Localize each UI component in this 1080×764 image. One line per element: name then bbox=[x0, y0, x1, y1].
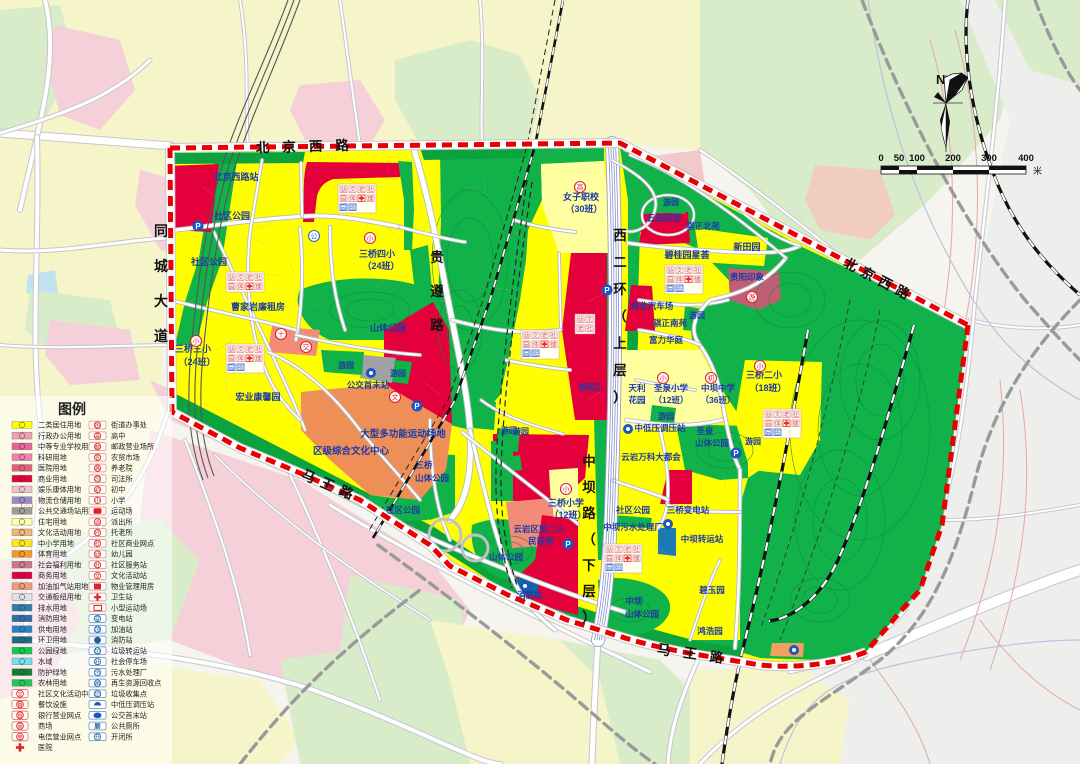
svg-text:社: 社 bbox=[695, 266, 701, 274]
svg-text:中低压调压站: 中低压调压站 bbox=[634, 423, 686, 433]
svg-text:三桥小学: 三桥小学 bbox=[548, 497, 584, 508]
svg-text:文: 文 bbox=[238, 345, 244, 353]
svg-text:文: 文 bbox=[775, 410, 781, 418]
svg-text:幼儿园: 幼儿园 bbox=[111, 550, 133, 559]
svg-text:养老院: 养老院 bbox=[111, 464, 133, 473]
svg-text:园: 园 bbox=[668, 276, 674, 283]
svg-text:社: 社 bbox=[256, 273, 262, 281]
svg-text:医院用地: 医院用地 bbox=[38, 464, 67, 473]
svg-text:商: 商 bbox=[17, 722, 23, 730]
svg-text:米: 米 bbox=[1033, 165, 1042, 176]
svg-text:商务用地: 商务用地 bbox=[38, 571, 67, 580]
svg-text:小: 小 bbox=[660, 374, 667, 383]
svg-text:中等专业学校用地: 中等专业学校用地 bbox=[38, 442, 96, 451]
svg-text:卫生站: 卫生站 bbox=[111, 593, 133, 602]
svg-text:民医院: 民医院 bbox=[528, 536, 554, 546]
svg-text:园: 园 bbox=[766, 420, 772, 427]
svg-text:班: 班 bbox=[533, 349, 539, 357]
svg-text:骐正北苑: 骐正北苑 bbox=[686, 221, 721, 231]
svg-text:老: 老 bbox=[247, 345, 253, 353]
svg-text:垃圾转运站: 垃圾转运站 bbox=[111, 646, 147, 655]
svg-text:中: 中 bbox=[582, 453, 596, 469]
svg-text:再生资源回收点: 再生资源回收点 bbox=[111, 679, 161, 688]
svg-text:大: 大 bbox=[154, 293, 168, 309]
svg-text:医院: 医院 bbox=[38, 743, 52, 752]
svg-text:山体公园: 山体公园 bbox=[415, 473, 449, 483]
svg-text:（24班）: （24班） bbox=[178, 356, 215, 367]
svg-text:山体公园: 山体公园 bbox=[695, 438, 729, 448]
svg-text:文: 文 bbox=[533, 331, 539, 339]
svg-text:云岩区第二人: 云岩区第二人 bbox=[513, 524, 565, 534]
svg-text:小型运动场: 小型运动场 bbox=[111, 603, 147, 612]
svg-text:商业汽车场: 商业汽车场 bbox=[631, 301, 674, 311]
svg-text:垃: 垃 bbox=[95, 690, 101, 698]
svg-text:云田府邸: 云田府邸 bbox=[647, 213, 682, 223]
svg-text:键: 键 bbox=[256, 354, 262, 362]
svg-text:再: 再 bbox=[95, 680, 101, 687]
svg-text:幼: 幼 bbox=[578, 315, 584, 323]
svg-text:富力华庭: 富力华庭 bbox=[649, 335, 684, 345]
svg-text:图例: 图例 bbox=[58, 401, 86, 417]
svg-text:文: 文 bbox=[392, 393, 399, 402]
svg-text:幼: 幼 bbox=[341, 185, 347, 193]
svg-text:交: 交 bbox=[303, 343, 310, 352]
svg-text:游园: 游园 bbox=[513, 426, 529, 436]
svg-text:遵: 遵 bbox=[430, 283, 444, 299]
svg-text:层: 层 bbox=[582, 584, 596, 599]
svg-text:（36班）: （36班） bbox=[701, 395, 736, 405]
svg-text:餐饮设施: 餐饮设施 bbox=[38, 700, 67, 709]
svg-text:养: 养 bbox=[95, 464, 101, 472]
svg-text:键: 键 bbox=[368, 194, 374, 202]
svg-text:二: 二 bbox=[613, 255, 627, 270]
svg-text:司: 司 bbox=[95, 476, 101, 483]
svg-text:社区公园: 社区公园 bbox=[615, 505, 650, 515]
svg-text:社: 社 bbox=[551, 331, 557, 339]
svg-text:社区公园: 社区公园 bbox=[190, 256, 227, 267]
svg-text:宏业康馨园: 宏业康馨园 bbox=[235, 391, 280, 402]
svg-text:园: 园 bbox=[607, 564, 613, 571]
svg-text:园: 园 bbox=[766, 429, 772, 436]
svg-text:十: 十 bbox=[278, 330, 285, 339]
svg-text:0: 0 bbox=[878, 153, 883, 164]
svg-text:P: P bbox=[733, 449, 739, 458]
svg-text:老: 老 bbox=[247, 273, 253, 281]
svg-text:高: 高 bbox=[577, 183, 584, 192]
svg-text:加: 加 bbox=[95, 626, 101, 634]
svg-text:）: ） bbox=[582, 610, 596, 625]
svg-text:娱乐康体用地: 娱乐康体用地 bbox=[38, 485, 81, 494]
svg-text:污水处理厂: 污水处理厂 bbox=[111, 668, 147, 677]
svg-text:小: 小 bbox=[95, 497, 101, 505]
svg-text:文: 文 bbox=[238, 273, 244, 281]
svg-text:托老所: 托老所 bbox=[111, 528, 133, 537]
svg-text:山体公园: 山体公园 bbox=[625, 609, 659, 619]
svg-text:文: 文 bbox=[17, 690, 23, 698]
svg-text:社区文化活动中心: 社区文化活动中心 bbox=[38, 689, 96, 698]
svg-text:社会停车场: 社会停车场 bbox=[111, 657, 147, 666]
svg-text:垃: 垃 bbox=[95, 647, 101, 655]
svg-text:加油加气站用地: 加油加气站用地 bbox=[38, 582, 88, 591]
svg-text:社: 社 bbox=[634, 545, 640, 553]
svg-text:园: 园 bbox=[341, 204, 347, 211]
svg-text:商场: 商场 bbox=[38, 722, 52, 731]
svg-text:（18班）: （18班） bbox=[749, 382, 786, 393]
svg-text:体: 体 bbox=[677, 275, 683, 283]
svg-text:消防站: 消防站 bbox=[111, 636, 133, 645]
svg-text:幼: 幼 bbox=[229, 273, 235, 281]
svg-text:街道办事处: 街道办事处 bbox=[111, 421, 147, 430]
svg-text:老: 老 bbox=[359, 185, 365, 193]
svg-text:公: 公 bbox=[311, 233, 318, 241]
svg-text:科研用地: 科研用地 bbox=[38, 453, 67, 462]
svg-text:中低压调压站: 中低压调压站 bbox=[111, 700, 154, 709]
svg-text:电信营业网点: 电信营业网点 bbox=[38, 732, 81, 741]
svg-text:运动场: 运动场 bbox=[111, 507, 133, 516]
svg-text:小: 小 bbox=[367, 234, 374, 243]
svg-text:幼: 幼 bbox=[95, 550, 101, 558]
svg-text:初: 初 bbox=[95, 486, 101, 494]
svg-text:50: 50 bbox=[894, 153, 905, 164]
svg-text:圣泉: 圣泉 bbox=[695, 426, 714, 436]
svg-text:体育用地: 体育用地 bbox=[38, 550, 67, 559]
svg-text:大型多功能运动场地: 大型多功能运动场地 bbox=[360, 428, 446, 440]
svg-text:区级综合文化中心: 区级综合文化中心 bbox=[313, 445, 390, 457]
svg-text:中坝污水处理厂: 中坝污水处理厂 bbox=[603, 522, 663, 532]
svg-text:键: 键 bbox=[793, 419, 799, 427]
svg-text:厕: 厕 bbox=[94, 723, 100, 731]
svg-text:键: 键 bbox=[695, 275, 701, 283]
svg-text:农林用地: 农林用地 bbox=[38, 679, 67, 688]
svg-text:班: 班 bbox=[238, 363, 244, 371]
svg-text:云岩万科大都会: 云岩万科大都会 bbox=[621, 452, 681, 462]
svg-text:三桥二小: 三桥二小 bbox=[746, 369, 782, 380]
svg-text:开: 开 bbox=[95, 734, 101, 741]
svg-text:同: 同 bbox=[154, 223, 168, 239]
svg-text:100: 100 bbox=[909, 153, 925, 164]
svg-text:银行营业网点: 银行营业网点 bbox=[38, 711, 81, 720]
svg-text:贵阳印象: 贵阳印象 bbox=[730, 272, 765, 282]
svg-text:园: 园 bbox=[229, 283, 235, 290]
svg-text:文: 文 bbox=[95, 572, 101, 580]
svg-text:园: 园 bbox=[524, 350, 530, 357]
svg-text:幼: 幼 bbox=[607, 545, 613, 553]
svg-text:小学: 小学 bbox=[111, 496, 125, 505]
svg-text:物业管理用房: 物业管理用房 bbox=[111, 582, 154, 591]
svg-text:变: 变 bbox=[95, 615, 101, 623]
svg-text:社: 社 bbox=[256, 345, 262, 353]
svg-text:稻田汇: 稻田汇 bbox=[579, 382, 603, 392]
svg-text:小: 小 bbox=[193, 337, 200, 346]
svg-text:文: 文 bbox=[677, 266, 683, 274]
svg-text:碧玉园: 碧玉园 bbox=[698, 585, 725, 595]
svg-text:（12班）: （12班） bbox=[654, 395, 689, 405]
svg-text:）: ） bbox=[613, 390, 627, 405]
svg-text:银: 银 bbox=[17, 711, 23, 719]
svg-text:北京西路: 北京西路 bbox=[256, 137, 362, 156]
svg-text:体: 体 bbox=[616, 554, 622, 562]
svg-text:农: 农 bbox=[95, 454, 101, 462]
svg-text:P: P bbox=[414, 402, 420, 411]
svg-text:班: 班 bbox=[616, 563, 622, 571]
svg-text:老: 老 bbox=[542, 331, 548, 339]
svg-text:初中: 初中 bbox=[111, 485, 125, 494]
svg-text:司法所: 司法所 bbox=[111, 474, 133, 483]
svg-text:（30班）: （30班） bbox=[565, 203, 602, 214]
svg-text:西: 西 bbox=[613, 228, 627, 243]
svg-text:中坝中学: 中坝中学 bbox=[701, 383, 736, 393]
svg-text:社: 社 bbox=[95, 540, 101, 548]
svg-text:（: （ bbox=[582, 532, 596, 547]
svg-text:餐: 餐 bbox=[17, 701, 23, 709]
svg-text:高中: 高中 bbox=[111, 431, 125, 440]
svg-text:社: 社 bbox=[368, 185, 374, 193]
svg-text:高: 高 bbox=[95, 432, 101, 440]
svg-text:班: 班 bbox=[775, 428, 781, 436]
svg-text:游园: 游园 bbox=[338, 360, 354, 370]
svg-text:层: 层 bbox=[613, 363, 627, 378]
svg-text:污: 污 bbox=[95, 669, 101, 677]
svg-text:初: 初 bbox=[708, 374, 715, 383]
svg-text:街: 街 bbox=[95, 421, 101, 429]
svg-text:园: 园 bbox=[607, 555, 613, 562]
svg-text:交通板纽用地: 交通板纽用地 bbox=[38, 593, 81, 602]
svg-text:键: 键 bbox=[256, 282, 262, 290]
svg-text:山体公园: 山体公园 bbox=[370, 322, 406, 333]
svg-text:新田园: 新田园 bbox=[733, 241, 760, 252]
svg-text:键: 键 bbox=[634, 554, 640, 562]
svg-text:P: P bbox=[565, 540, 571, 549]
svg-text:幼: 幼 bbox=[766, 410, 772, 418]
svg-text:老: 老 bbox=[625, 545, 631, 553]
svg-text:文: 文 bbox=[350, 185, 356, 193]
svg-text:游园: 游园 bbox=[745, 436, 761, 446]
svg-text:社: 社 bbox=[95, 658, 101, 666]
svg-text:P: P bbox=[195, 222, 201, 231]
svg-text:体: 体 bbox=[350, 194, 356, 202]
svg-text:体: 体 bbox=[238, 282, 244, 290]
svg-text:（12班）: （12班） bbox=[549, 509, 586, 520]
svg-text:班: 班 bbox=[350, 203, 356, 211]
svg-text:社: 社 bbox=[95, 561, 101, 569]
svg-text:消防站: 消防站 bbox=[517, 590, 543, 600]
svg-text:山体公园: 山体公园 bbox=[489, 552, 523, 562]
svg-text:三桥变电站: 三桥变电站 bbox=[667, 505, 710, 515]
svg-text:碧桂园星荟: 碧桂园星荟 bbox=[663, 249, 710, 260]
svg-text:加油站: 加油站 bbox=[111, 625, 133, 634]
svg-text:鸿浩园: 鸿浩园 bbox=[697, 626, 723, 636]
svg-text:小: 小 bbox=[757, 362, 764, 371]
svg-text:社区公园: 社区公园 bbox=[385, 505, 420, 515]
svg-text:（24班）: （24班） bbox=[362, 260, 399, 271]
svg-text:骐正南苑: 骐正南苑 bbox=[653, 318, 688, 328]
svg-text:道: 道 bbox=[154, 328, 168, 344]
svg-text:下: 下 bbox=[582, 558, 596, 573]
svg-text:上: 上 bbox=[613, 336, 627, 351]
svg-text:园: 园 bbox=[668, 285, 674, 292]
svg-text:花园: 花园 bbox=[628, 395, 645, 405]
svg-text:托: 托 bbox=[95, 529, 101, 537]
svg-text:派出所: 派出所 bbox=[111, 517, 133, 526]
svg-text:幼: 幼 bbox=[229, 345, 235, 353]
svg-text:中坝: 中坝 bbox=[625, 596, 643, 606]
svg-text:中小学用地: 中小学用地 bbox=[38, 539, 74, 548]
svg-text:二类居住用地: 二类居住用地 bbox=[38, 421, 81, 430]
svg-text:曹家岩廉租房: 曹家岩廉租房 bbox=[231, 301, 285, 312]
svg-text:幼: 幼 bbox=[668, 266, 674, 274]
svg-text:公交首末站: 公交首末站 bbox=[111, 711, 147, 720]
svg-text:文化活动用地: 文化活动用地 bbox=[38, 528, 81, 537]
svg-text:社区服务站: 社区服务站 bbox=[111, 560, 147, 569]
svg-text:社: 社 bbox=[793, 410, 799, 418]
svg-text:游: 游 bbox=[749, 293, 756, 302]
svg-text:文化活动站: 文化活动站 bbox=[111, 571, 147, 580]
svg-text:社区公园: 社区公园 bbox=[213, 210, 250, 221]
svg-text:300: 300 bbox=[981, 153, 997, 164]
svg-text:电: 电 bbox=[17, 733, 23, 741]
svg-text:排水用地: 排水用地 bbox=[38, 603, 67, 612]
svg-text:老: 老 bbox=[686, 266, 692, 274]
svg-text:（: （ bbox=[613, 309, 627, 324]
svg-text:坝: 坝 bbox=[582, 480, 596, 495]
svg-text:社区商业网点: 社区商业网点 bbox=[111, 539, 154, 548]
svg-text:中坝转运站: 中坝转运站 bbox=[681, 534, 724, 544]
svg-text:防护绿地: 防护绿地 bbox=[38, 668, 67, 677]
svg-text:贵: 贵 bbox=[430, 249, 444, 265]
svg-text:体: 体 bbox=[238, 354, 244, 362]
svg-text:键: 键 bbox=[551, 340, 557, 348]
svg-text:物流仓储用地: 物流仓储用地 bbox=[38, 496, 81, 505]
svg-text:社会福利用地: 社会福利用地 bbox=[38, 560, 81, 569]
svg-text:公交首末站: 公交首末站 bbox=[347, 380, 390, 390]
svg-text:环: 环 bbox=[613, 282, 627, 297]
svg-text:游园: 游园 bbox=[658, 411, 674, 421]
svg-text:变电站: 变电站 bbox=[111, 614, 133, 623]
svg-text:垃圾收集点: 垃圾收集点 bbox=[111, 689, 147, 698]
svg-text:公共交通场站用地: 公共交通场站用地 bbox=[38, 507, 96, 516]
svg-text:体: 体 bbox=[775, 419, 781, 427]
svg-text:三桥四小: 三桥四小 bbox=[359, 248, 395, 259]
svg-text:三桥: 三桥 bbox=[415, 460, 433, 470]
svg-text:公园绿地: 公园绿地 bbox=[38, 646, 67, 655]
svg-text:园: 园 bbox=[229, 355, 235, 362]
svg-text:住宅用地: 住宅用地 bbox=[38, 517, 67, 526]
svg-text:派: 派 bbox=[95, 519, 101, 526]
svg-text:体: 体 bbox=[533, 340, 539, 348]
svg-text:游园: 游园 bbox=[390, 368, 406, 378]
svg-text:园: 园 bbox=[524, 341, 530, 348]
svg-text:开闭所: 开闭所 bbox=[111, 732, 133, 741]
svg-text:邮政营业场所: 邮政营业场所 bbox=[111, 442, 154, 451]
svg-text:邮: 邮 bbox=[95, 443, 101, 451]
svg-text:游园: 游园 bbox=[663, 197, 679, 207]
svg-text:消防用地: 消防用地 bbox=[38, 614, 67, 623]
svg-text:公共厕所: 公共厕所 bbox=[111, 722, 140, 731]
svg-text:行政办公用地: 行政办公用地 bbox=[38, 431, 81, 440]
svg-text:园: 园 bbox=[341, 195, 347, 202]
svg-text:天利: 天利 bbox=[628, 383, 645, 393]
svg-text:圣泉小学: 圣泉小学 bbox=[653, 383, 689, 393]
svg-text:400: 400 bbox=[1018, 153, 1034, 164]
svg-text:园: 园 bbox=[229, 364, 235, 371]
svg-text:200: 200 bbox=[945, 153, 961, 164]
svg-text:路: 路 bbox=[430, 317, 444, 333]
svg-text:文: 文 bbox=[616, 545, 622, 553]
svg-text:班: 班 bbox=[677, 284, 683, 292]
svg-text:环卫用地: 环卫用地 bbox=[38, 636, 67, 645]
svg-text:社: 社 bbox=[587, 324, 593, 332]
svg-text:幼: 幼 bbox=[524, 331, 530, 339]
svg-text:小: 小 bbox=[563, 485, 570, 494]
svg-text:游园: 游园 bbox=[689, 310, 705, 320]
svg-text:城: 城 bbox=[154, 258, 168, 274]
svg-text:商业用地: 商业用地 bbox=[38, 474, 67, 483]
svg-text:北京西路站: 北京西路站 bbox=[213, 171, 258, 182]
svg-text:文: 文 bbox=[587, 315, 593, 323]
svg-text:水域: 水域 bbox=[38, 657, 52, 666]
svg-text:P: P bbox=[604, 286, 610, 295]
svg-text:老: 老 bbox=[784, 410, 790, 418]
svg-text:农贸市场: 农贸市场 bbox=[111, 453, 140, 462]
svg-text:供电用地: 供电用地 bbox=[38, 625, 67, 634]
svg-text:老: 老 bbox=[578, 324, 584, 332]
